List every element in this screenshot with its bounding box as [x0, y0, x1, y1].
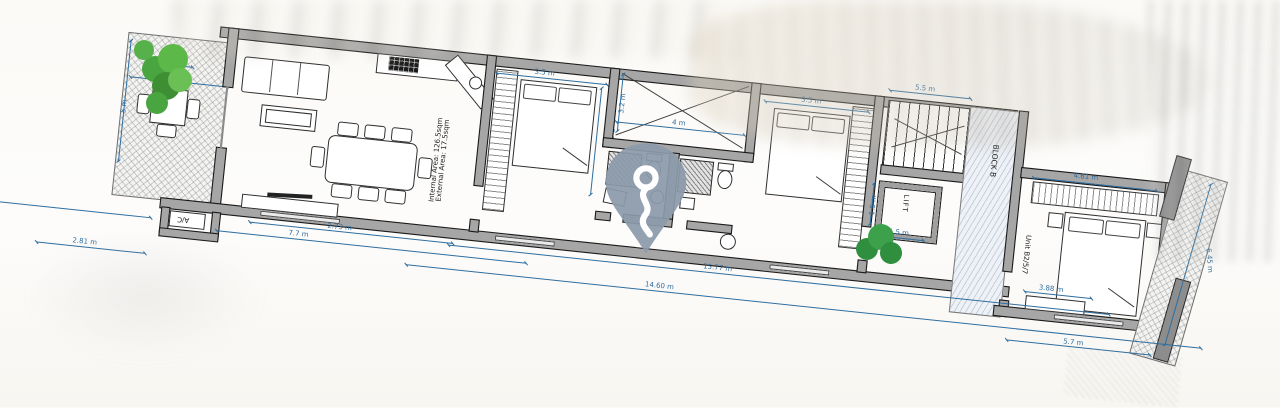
terrace-chair-bottom	[156, 123, 177, 138]
bed3-pillow-left	[1068, 216, 1104, 235]
location-pin-icon	[601, 140, 691, 256]
bed2-pillow-left	[776, 112, 810, 130]
bed1-pillow-right	[558, 87, 592, 105]
unit-label: Unit B2/5/7	[1020, 235, 1031, 275]
dining-chair-7	[309, 146, 325, 168]
dining-chair-3	[391, 127, 413, 143]
wall-ac-bottom	[159, 228, 217, 241]
toilet2-bowl	[716, 169, 733, 189]
bush-foliage	[880, 242, 902, 264]
tree	[134, 40, 196, 122]
area-text: Internal Area: 126.5sqm External Area: 1…	[428, 114, 458, 208]
tree-foliage	[168, 68, 192, 92]
bed1-fold	[563, 148, 588, 166]
dim-right-terrace: 6.45 m	[1205, 248, 1214, 273]
bed1-pillow-left	[523, 84, 557, 102]
wall-corridor-3	[687, 221, 731, 233]
tree-foliage	[134, 40, 154, 60]
bed1	[512, 79, 598, 174]
wall-living-left-upper	[223, 28, 238, 87]
bed2	[765, 108, 851, 203]
corridor-basin	[719, 233, 737, 251]
bed2-pillow-right	[811, 116, 845, 134]
dining-chair-5	[357, 186, 379, 202]
kitchen-hob	[388, 56, 419, 73]
tree-foliage	[146, 92, 168, 114]
dining-chair-6	[384, 189, 406, 205]
sofa	[241, 56, 330, 101]
bush	[856, 222, 906, 268]
bed3-nightstand-right	[1146, 222, 1162, 238]
location-pin[interactable]	[601, 140, 691, 256]
bed3-nightstand-left	[1047, 212, 1063, 228]
dim-shaft-depth: 3.2 m	[618, 93, 627, 114]
bed3-pillow-right	[1105, 220, 1141, 239]
dining-chair-4	[330, 183, 352, 199]
wall-shaft-right	[744, 83, 760, 161]
wall-bed1-left-lower	[470, 220, 479, 232]
dim-terrace-side: 5 m	[120, 99, 128, 113]
dim-line-neighbor	[0, 199, 151, 218]
ac-label: A/C	[177, 215, 190, 223]
bed3-fold	[1108, 288, 1134, 308]
dining-chair-1	[337, 121, 359, 137]
bed2-fold	[816, 176, 841, 194]
dining-chair-2	[364, 124, 386, 140]
lift-label: LIFT	[901, 194, 910, 213]
dim-shaft-width: 4 m	[672, 119, 686, 127]
